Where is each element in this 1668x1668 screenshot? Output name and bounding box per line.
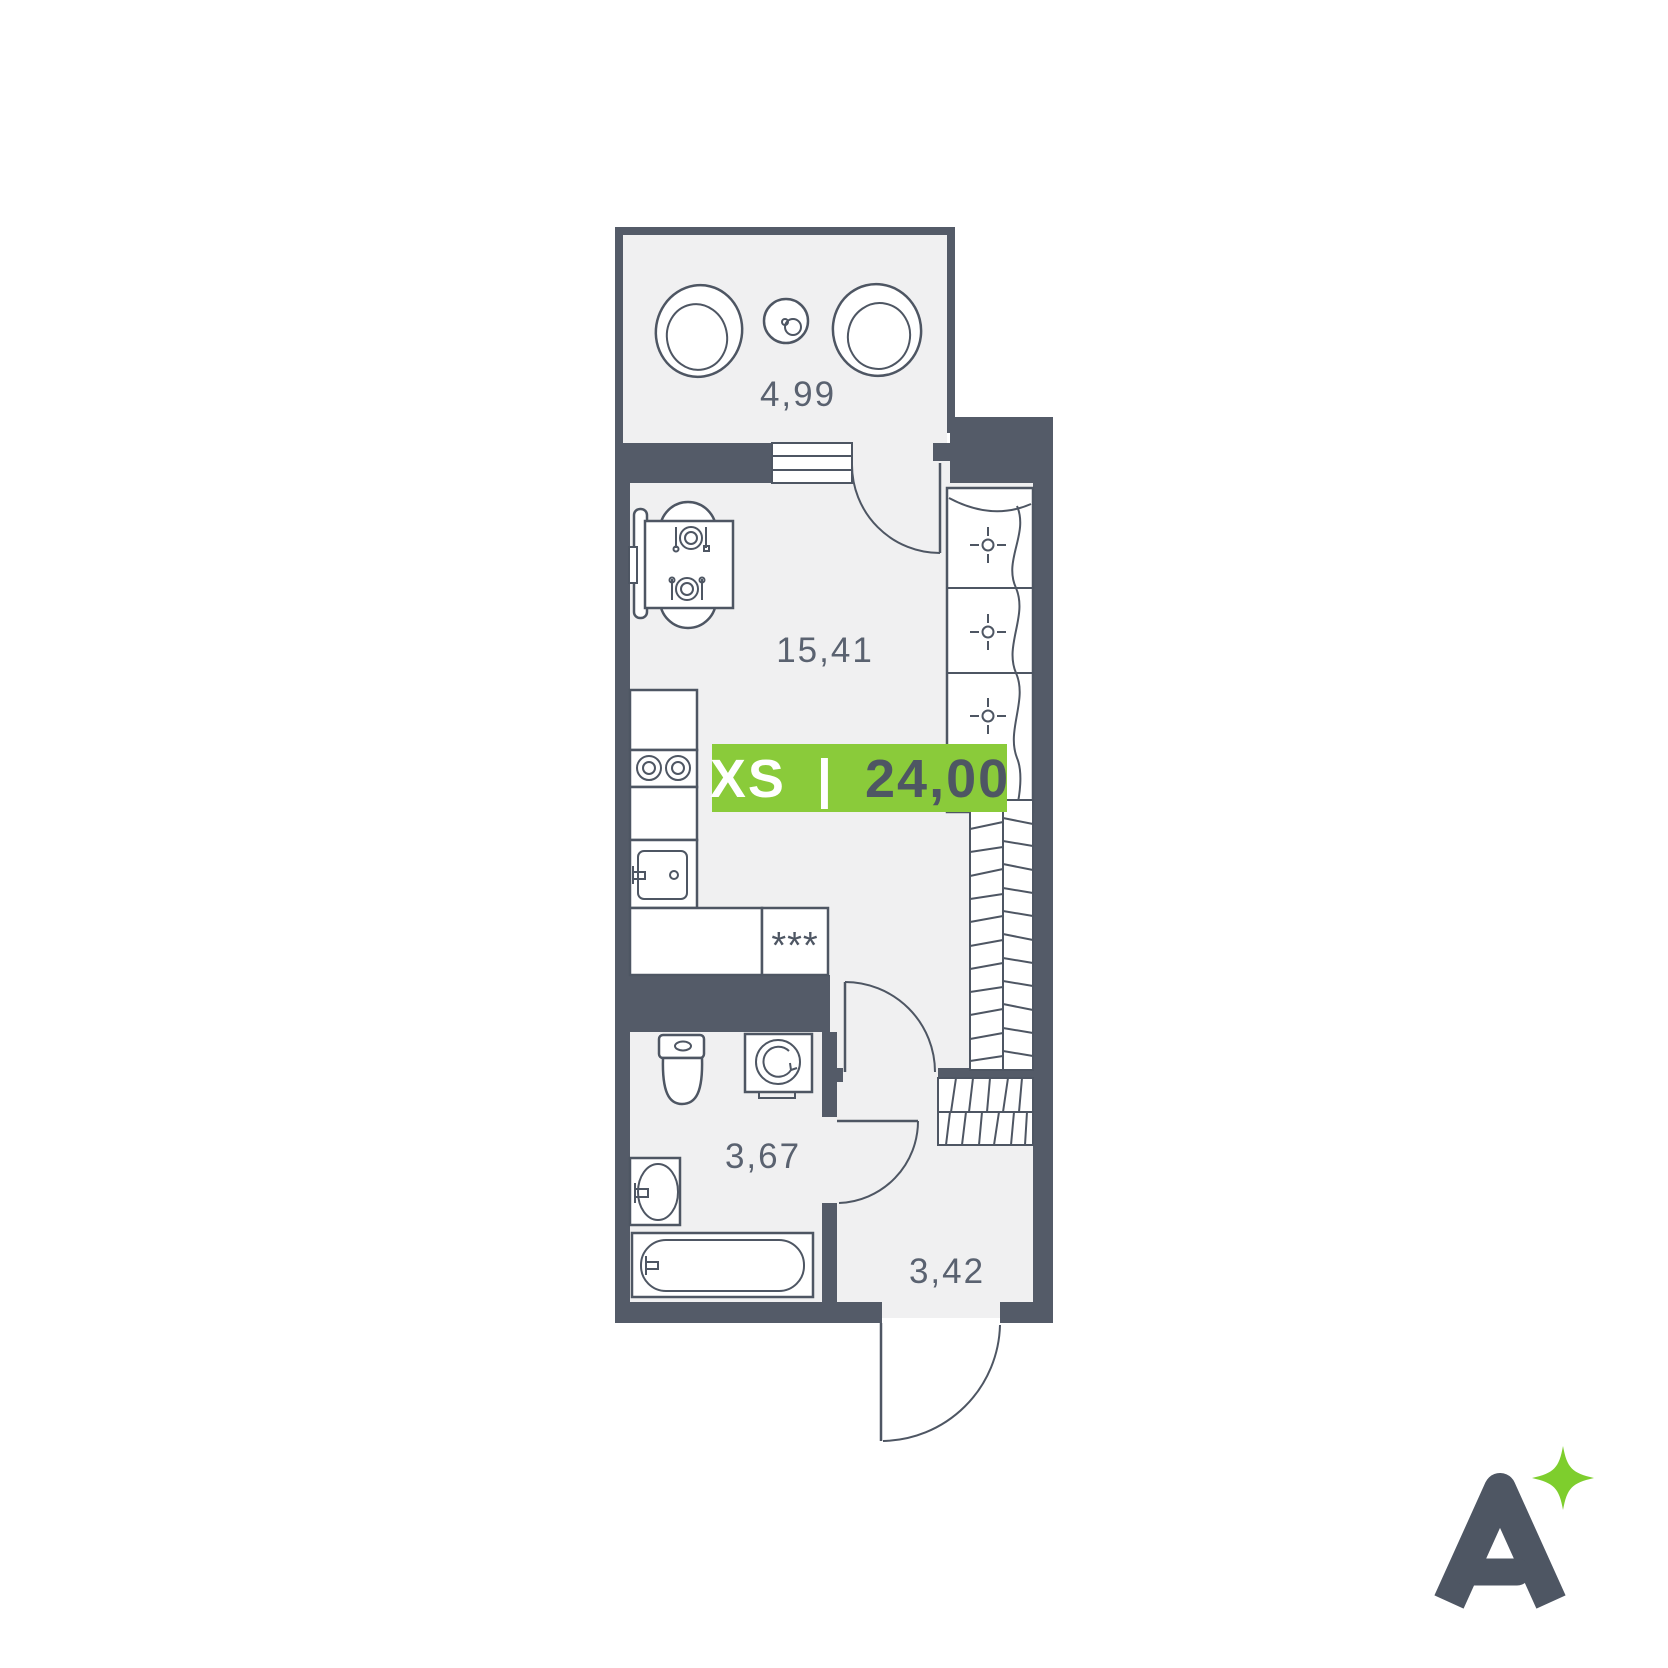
- wall-right: [1033, 483, 1053, 1323]
- wall-hall-door-stub: [829, 1068, 843, 1082]
- dining-group: [634, 502, 733, 628]
- brand-logo: [1449, 1446, 1594, 1602]
- wall-door-hinge-notch: [933, 443, 950, 461]
- wall-left: [615, 443, 630, 1323]
- bathroom-area-label: 3,67: [725, 1137, 801, 1176]
- window-icon: [772, 443, 852, 483]
- wall-bathroom-top: [615, 975, 830, 1032]
- washing-machine-icon: [745, 1034, 812, 1098]
- wall-bottom-left: [615, 1302, 882, 1323]
- counter-segment-low: [630, 908, 762, 975]
- entrance-door: [881, 1323, 1000, 1441]
- stairs-hatch-icon: [970, 800, 1033, 1070]
- wall-bottom-right: [1000, 1302, 1053, 1323]
- area-badge: XS | 24,00: [710, 744, 1010, 812]
- door-swing-icon: [883, 1325, 1000, 1441]
- wall-room-top: [615, 443, 772, 483]
- wall-bathroom-right-lower: [822, 1203, 837, 1302]
- counter-marker-box: ***: [762, 908, 828, 975]
- stove-burner-icon: [630, 750, 697, 787]
- bathroom-sink-icon: [630, 1158, 680, 1225]
- balcony-area-label: 4,99: [760, 375, 836, 414]
- counter-segment: [630, 787, 697, 840]
- sink-icon: [630, 840, 697, 908]
- badge-separator: |: [817, 749, 834, 810]
- floor-plan-svg: ***: [0, 0, 1668, 1668]
- balcony-wall-left: [615, 227, 623, 443]
- coffee-table-icon: [764, 299, 808, 343]
- counter-segment: [630, 690, 697, 750]
- floor-plan-page: ***: [0, 0, 1668, 1668]
- logo-sparkle-icon: [1532, 1446, 1594, 1510]
- balcony-wall-right: [947, 227, 955, 433]
- wall-radiator: [629, 547, 637, 583]
- stairs-hatch-lower-icon: [938, 1078, 1033, 1145]
- badge-size-class: XS: [710, 749, 786, 809]
- bathtub-icon: [632, 1233, 813, 1297]
- wall-corner-block: [950, 417, 1053, 483]
- entrance-threshold: [882, 1302, 1000, 1318]
- counter-marker-label: ***: [771, 925, 818, 967]
- badge-area-value: 24,00: [865, 749, 1010, 809]
- living-room-area-label: 15,41: [776, 631, 874, 670]
- hallway-area-label: 3,42: [909, 1252, 985, 1291]
- balcony-wall-top: [615, 227, 955, 235]
